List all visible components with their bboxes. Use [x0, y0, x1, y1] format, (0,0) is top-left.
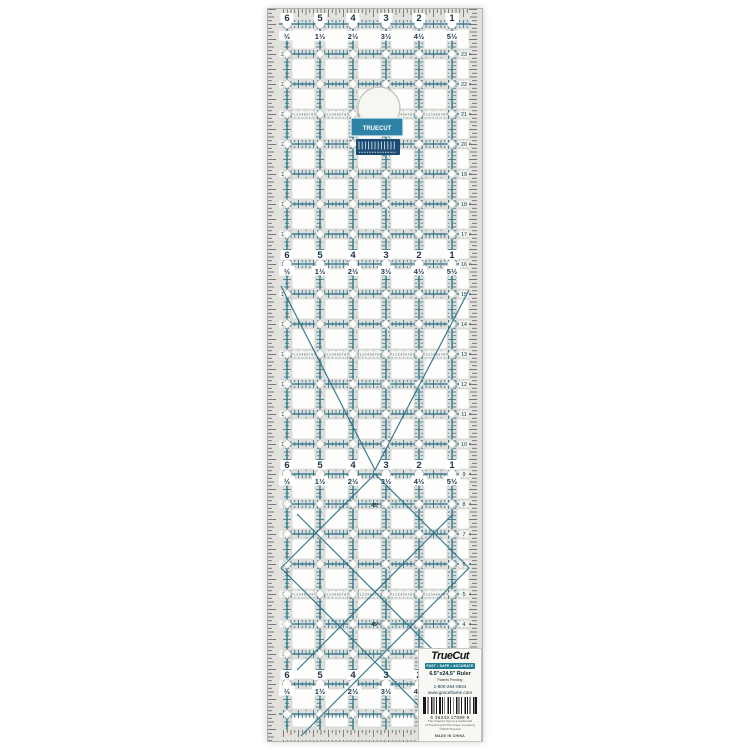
- scale-number-top: 4: [350, 460, 356, 471]
- row-eighths: 1 2 3 4 5 6 7 8: [327, 113, 347, 117]
- scale-number-top: 5: [317, 13, 323, 24]
- scale-number-top: 1: [449, 13, 455, 24]
- row-label: 23: [461, 52, 467, 58]
- brand-logo: TrueCut: [431, 651, 469, 662]
- product-label: TrueCut FAST • SAFE • ACCURATE 6.5"x24.5…: [418, 648, 482, 742]
- barcode: 6 36343 17089 9: [423, 697, 477, 720]
- ruler-grid-svg: 1 2 3 4 5 6 7 81 2 3 4 5 6 7 81 2 3 4 5 …: [267, 8, 483, 742]
- left-edge-ticks: [267, 8, 281, 742]
- row-label: 4: [463, 622, 466, 628]
- row-label: 9: [463, 472, 466, 478]
- row-eighths: 1 2 3 4 5 6 7 8: [360, 353, 380, 357]
- right-edge-ticks: [469, 8, 483, 742]
- row-label: 12: [461, 382, 467, 388]
- row-eighths: 1 2 3 4 5 6 7 8: [327, 353, 347, 357]
- barcode-bars: [423, 697, 477, 714]
- scale-number-top: 5: [317, 460, 323, 471]
- row-label: 8: [463, 502, 466, 508]
- row-label: 19: [461, 172, 467, 178]
- scale-number-half: 1½: [315, 267, 325, 276]
- row-eighths: 1 2 3 4 5 6 7 8: [294, 353, 314, 357]
- phone-number: 1-800-264-0644: [434, 684, 467, 689]
- scale-number-half: 1½: [315, 32, 325, 41]
- tagline-banner: FAST • SAFE • ACCURATE: [425, 663, 476, 669]
- scale-number-half: ½: [284, 32, 290, 41]
- scale-number-top: 6: [284, 13, 289, 24]
- scale-number-half: 4½: [414, 32, 424, 41]
- scale-number-half: 2½: [348, 267, 358, 276]
- scale-number-half: 3½: [381, 32, 391, 41]
- scale-number-half: 3½: [381, 687, 391, 696]
- fine-print-line: ©2010 TrueCut: [439, 728, 460, 732]
- scale-number-top: 3: [383, 250, 388, 261]
- scale-number-half: 4½: [414, 477, 424, 486]
- sticker-brand: TRUECUT: [363, 126, 392, 132]
- row-eighths: 1 2 3 4 5 6 7 8: [294, 113, 314, 117]
- patents-text: Patents Pending: [438, 678, 463, 682]
- row-eighths: 1 2 3 4 5 6 7 8: [426, 113, 446, 117]
- row-label: 17: [461, 232, 467, 238]
- scale-number-half: 5½: [447, 267, 457, 276]
- row-eighths: 1 2 3 4 5 6 7 8: [393, 593, 413, 597]
- website-url: www.graceframe.com: [428, 690, 472, 695]
- row-label: 10: [461, 442, 467, 448]
- angle-label: 45°: [371, 622, 379, 628]
- quilting-ruler: 1 2 3 4 5 6 7 81 2 3 4 5 6 7 81 2 3 4 5 …: [267, 8, 483, 742]
- scale-number-top: 6: [284, 460, 289, 471]
- scale-number-half: 4½: [414, 267, 424, 276]
- scale-number-top: 5: [317, 250, 323, 261]
- scale-number-half: 5½: [447, 477, 457, 486]
- row-label: 22: [461, 82, 467, 88]
- row-label: 14: [461, 322, 467, 328]
- product-photo: 1 2 3 4 5 6 7 81 2 3 4 5 6 7 81 2 3 4 5 …: [0, 0, 750, 750]
- scale-number-half: 5½: [447, 32, 457, 41]
- scale-number-top: 5: [317, 670, 323, 681]
- row-label: 5: [463, 592, 466, 598]
- scale-number-half: ½: [284, 267, 290, 276]
- product-name: 6.5"x24.5" Ruler: [429, 671, 470, 677]
- scale-number-top: 1: [449, 460, 455, 471]
- top-edge-ticks: [281, 8, 469, 20]
- row-label: 11: [461, 412, 467, 418]
- scale-number-top: 4: [350, 13, 356, 24]
- scale-number-top: 1: [449, 250, 455, 261]
- scale-number-top: 4: [350, 670, 356, 681]
- scale-number-half: 2½: [348, 477, 358, 486]
- scale-number-top: 6: [284, 250, 289, 261]
- scale-number-top: 2: [416, 460, 421, 471]
- scale-number-top: 4: [350, 250, 356, 261]
- row-label: 18: [461, 202, 467, 208]
- scale-number-top: 3: [383, 13, 388, 24]
- row-eighths: 1 2 3 4 5 6 7 8: [327, 593, 347, 597]
- row-label: 21: [461, 112, 467, 118]
- scale-number-half: ½: [284, 477, 290, 486]
- scale-number-top: 6: [284, 670, 289, 681]
- row-eighths: 1 2 3 4 5 6 7 8: [393, 353, 413, 357]
- scale-number-half: 3½: [381, 267, 391, 276]
- scale-number-half: ½: [284, 687, 290, 696]
- scale-number-top: 2: [416, 13, 421, 24]
- scale-number-half: 1½: [315, 687, 325, 696]
- made-in-text: MADE IN CHINA: [435, 734, 465, 738]
- row-label: 20: [461, 142, 467, 148]
- row-label: 13: [461, 352, 467, 358]
- scale-number-half: 1½: [315, 477, 325, 486]
- angle-label: 45°: [371, 503, 379, 509]
- row-eighths: 1 2 3 4 5 6 7 8: [294, 593, 314, 597]
- row-label: 16: [461, 262, 467, 268]
- scale-number-top: 3: [383, 460, 388, 471]
- scale-number-half: 2½: [348, 32, 358, 41]
- scale-number-top: 2: [416, 250, 421, 261]
- row-label: 7: [463, 532, 466, 538]
